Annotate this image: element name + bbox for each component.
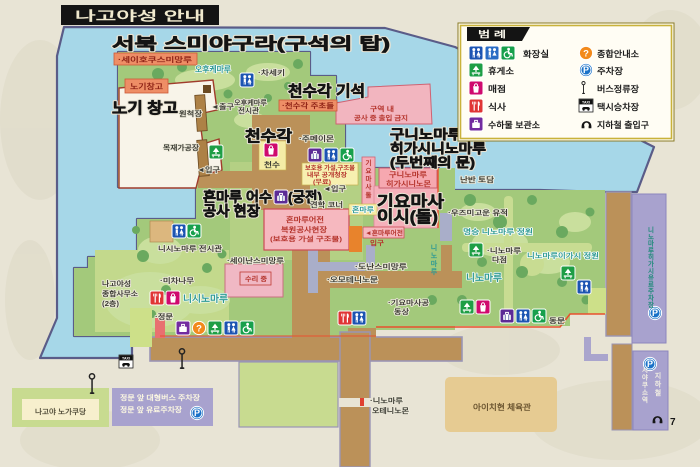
svg-text:버스정류장: 버스정류장 — [597, 84, 639, 94]
svg-text:수리 중: 수리 중 — [245, 274, 267, 283]
svg-text:오후케마루: 오후케마루 — [234, 98, 268, 107]
svg-text:천수각: 천수각 — [245, 127, 292, 145]
svg-text:지하철: 지하철 — [655, 371, 662, 397]
svg-text:니시노마루 전시관: 니시노마루 전시관 — [158, 244, 223, 253]
svg-text:·니노마루: ·니노마루 — [370, 396, 404, 405]
svg-text:·차세키: ·차세키 — [258, 68, 285, 77]
svg-text:나고야성 안내: 나고야성 안내 — [75, 9, 205, 24]
svg-text:·기요마사공: ·기요마사공 — [388, 298, 430, 307]
svg-text:화장실: 화장실 — [523, 49, 549, 59]
svg-text:동상: 동상 — [394, 307, 410, 316]
svg-text:목재가공장: 목재가공장 — [163, 143, 200, 152]
svg-text:동문: 동문 — [549, 317, 566, 325]
svg-text:·도난스미망루: ·도난스미망루 — [355, 262, 408, 271]
svg-text:혼마루: 혼마루 — [352, 205, 375, 214]
svg-text:·주메이몬: ·주메이몬 — [299, 134, 335, 143]
svg-text:(2층): (2층) — [102, 299, 119, 308]
svg-text:천수각 기석: 천수각 기석 — [288, 82, 365, 100]
svg-text:(보호용 가설 구조물): (보호용 가설 구조물) — [270, 234, 342, 243]
svg-text:원척장: 원척장 — [179, 109, 203, 118]
svg-text:수하물 보관소: 수하물 보관소 — [488, 120, 540, 130]
svg-text:히가시니노몬: 히가시니노몬 — [386, 179, 432, 188]
svg-text:아이치현 체육관: 아이치현 체육관 — [473, 402, 532, 412]
svg-text:히가시니노마루: 히가시니노마루 — [390, 141, 486, 156]
svg-text:지하철 출입구: 지하철 출입구 — [597, 120, 649, 130]
svg-text:난반 토담: 난반 토담 — [460, 175, 495, 184]
svg-text:시야쿠쇼역: 시야쿠쇼역 — [642, 366, 648, 404]
svg-text:식사: 식사 — [488, 102, 506, 112]
svg-text:·오모테니노문: ·오모테니노문 — [327, 275, 379, 284]
svg-text:다점: 다점 — [492, 255, 507, 264]
svg-text:복원공사현장: 복원공사현장 — [281, 225, 328, 234]
svg-text:니노마루: 니노마루 — [431, 243, 438, 276]
svg-text:·미차나무: ·미차나무 — [160, 276, 195, 285]
svg-text:혼마루어전: 혼마루어전 — [286, 215, 324, 224]
svg-text:노기 창고: 노기 창고 — [112, 100, 178, 117]
svg-text:◄입구: ◄입구 — [197, 165, 221, 174]
svg-text:니시노마루: 니시노마루 — [183, 293, 228, 305]
svg-text:·정문: ·정문 — [155, 312, 174, 321]
svg-text:·천수각 주초들: ·천수각 주초들 — [282, 101, 335, 110]
svg-text:이시(돌): 이시(돌) — [377, 208, 438, 226]
svg-text:주차장: 주차장 — [597, 66, 623, 76]
svg-text:공사 중 출입 금지: 공사 중 출입 금지 — [354, 113, 408, 122]
svg-text:·우즈미고운 유적: ·우즈미고운 유적 — [448, 208, 508, 217]
svg-text:·세이난스미망루: ·세이난스미망루 — [227, 256, 285, 265]
svg-text:구니노마루: 구니노마루 — [390, 127, 462, 142]
svg-text:니노마루이가시 정원: 니노마루이가시 정원 — [527, 251, 599, 260]
svg-text:구역 내: 구역 내 — [370, 104, 394, 113]
svg-text:나고야 노가쿠당: 나고야 노가쿠당 — [35, 407, 87, 416]
svg-text:서북 스미야구라(구석의 탑): 서북 스미야구라(구석의 탑) — [112, 34, 390, 53]
svg-text:명승 니노마루 정원: 명승 니노마루 정원 — [463, 227, 533, 236]
svg-text:내부 공개청장: 내부 공개청장 — [307, 171, 348, 179]
svg-text:·세이호쿠스미망루: ·세이호쿠스미망루 — [118, 55, 193, 64]
svg-text:정문 앞 대형버스 주차장: 정문 앞 대형버스 주차장 — [120, 393, 201, 402]
svg-text:◄혼마루어전: ◄혼마루어전 — [365, 228, 403, 237]
svg-text:기요마사돌: 기요마사돌 — [366, 158, 372, 199]
svg-text:·니노마루: ·니노마루 — [487, 246, 522, 255]
svg-text:휴게소: 휴게소 — [488, 66, 514, 76]
svg-text:(두번째의 문): (두번째의 문) — [390, 155, 475, 170]
svg-text:전시관: 전시관 — [238, 106, 260, 115]
svg-text:나고야성: 나고야성 — [102, 279, 131, 288]
svg-text:오테니노몬: 오테니노몬 — [372, 406, 410, 415]
svg-text:노기창고: 노기창고 — [130, 81, 163, 91]
svg-text:니노마루: 니노마루 — [466, 272, 502, 284]
svg-text:종합사무소: 종합사무소 — [102, 289, 139, 298]
svg-text:종합안내소: 종합안내소 — [597, 49, 639, 59]
svg-text:오후케마루: 오후케마루 — [195, 64, 232, 74]
svg-text:7: 7 — [670, 417, 676, 428]
svg-text:보호용 가설,구조물: 보호용 가설,구조물 — [305, 164, 355, 172]
svg-text:공사 현장: 공사 현장 — [203, 203, 260, 219]
svg-text:견학 코너: 견학 코너 — [310, 200, 343, 209]
svg-text:정문 앞 유료주차장: 정문 앞 유료주차장 — [120, 405, 183, 414]
svg-text:구니노마루: 구니노마루 — [389, 170, 428, 179]
svg-text:◄출구: ◄출구 — [211, 102, 235, 111]
svg-text:천수: 천수 — [264, 160, 281, 169]
svg-text:범 례: 범 례 — [478, 29, 506, 40]
svg-text:택시승차장: 택시승차장 — [597, 102, 639, 112]
svg-text:(무료): (무료) — [313, 178, 331, 186]
svg-text:니노마루히가시유료주차장: 니노마루히가시유료주차장 — [648, 225, 654, 309]
svg-text:입구: 입구 — [370, 238, 384, 247]
svg-text:매점: 매점 — [488, 84, 506, 94]
